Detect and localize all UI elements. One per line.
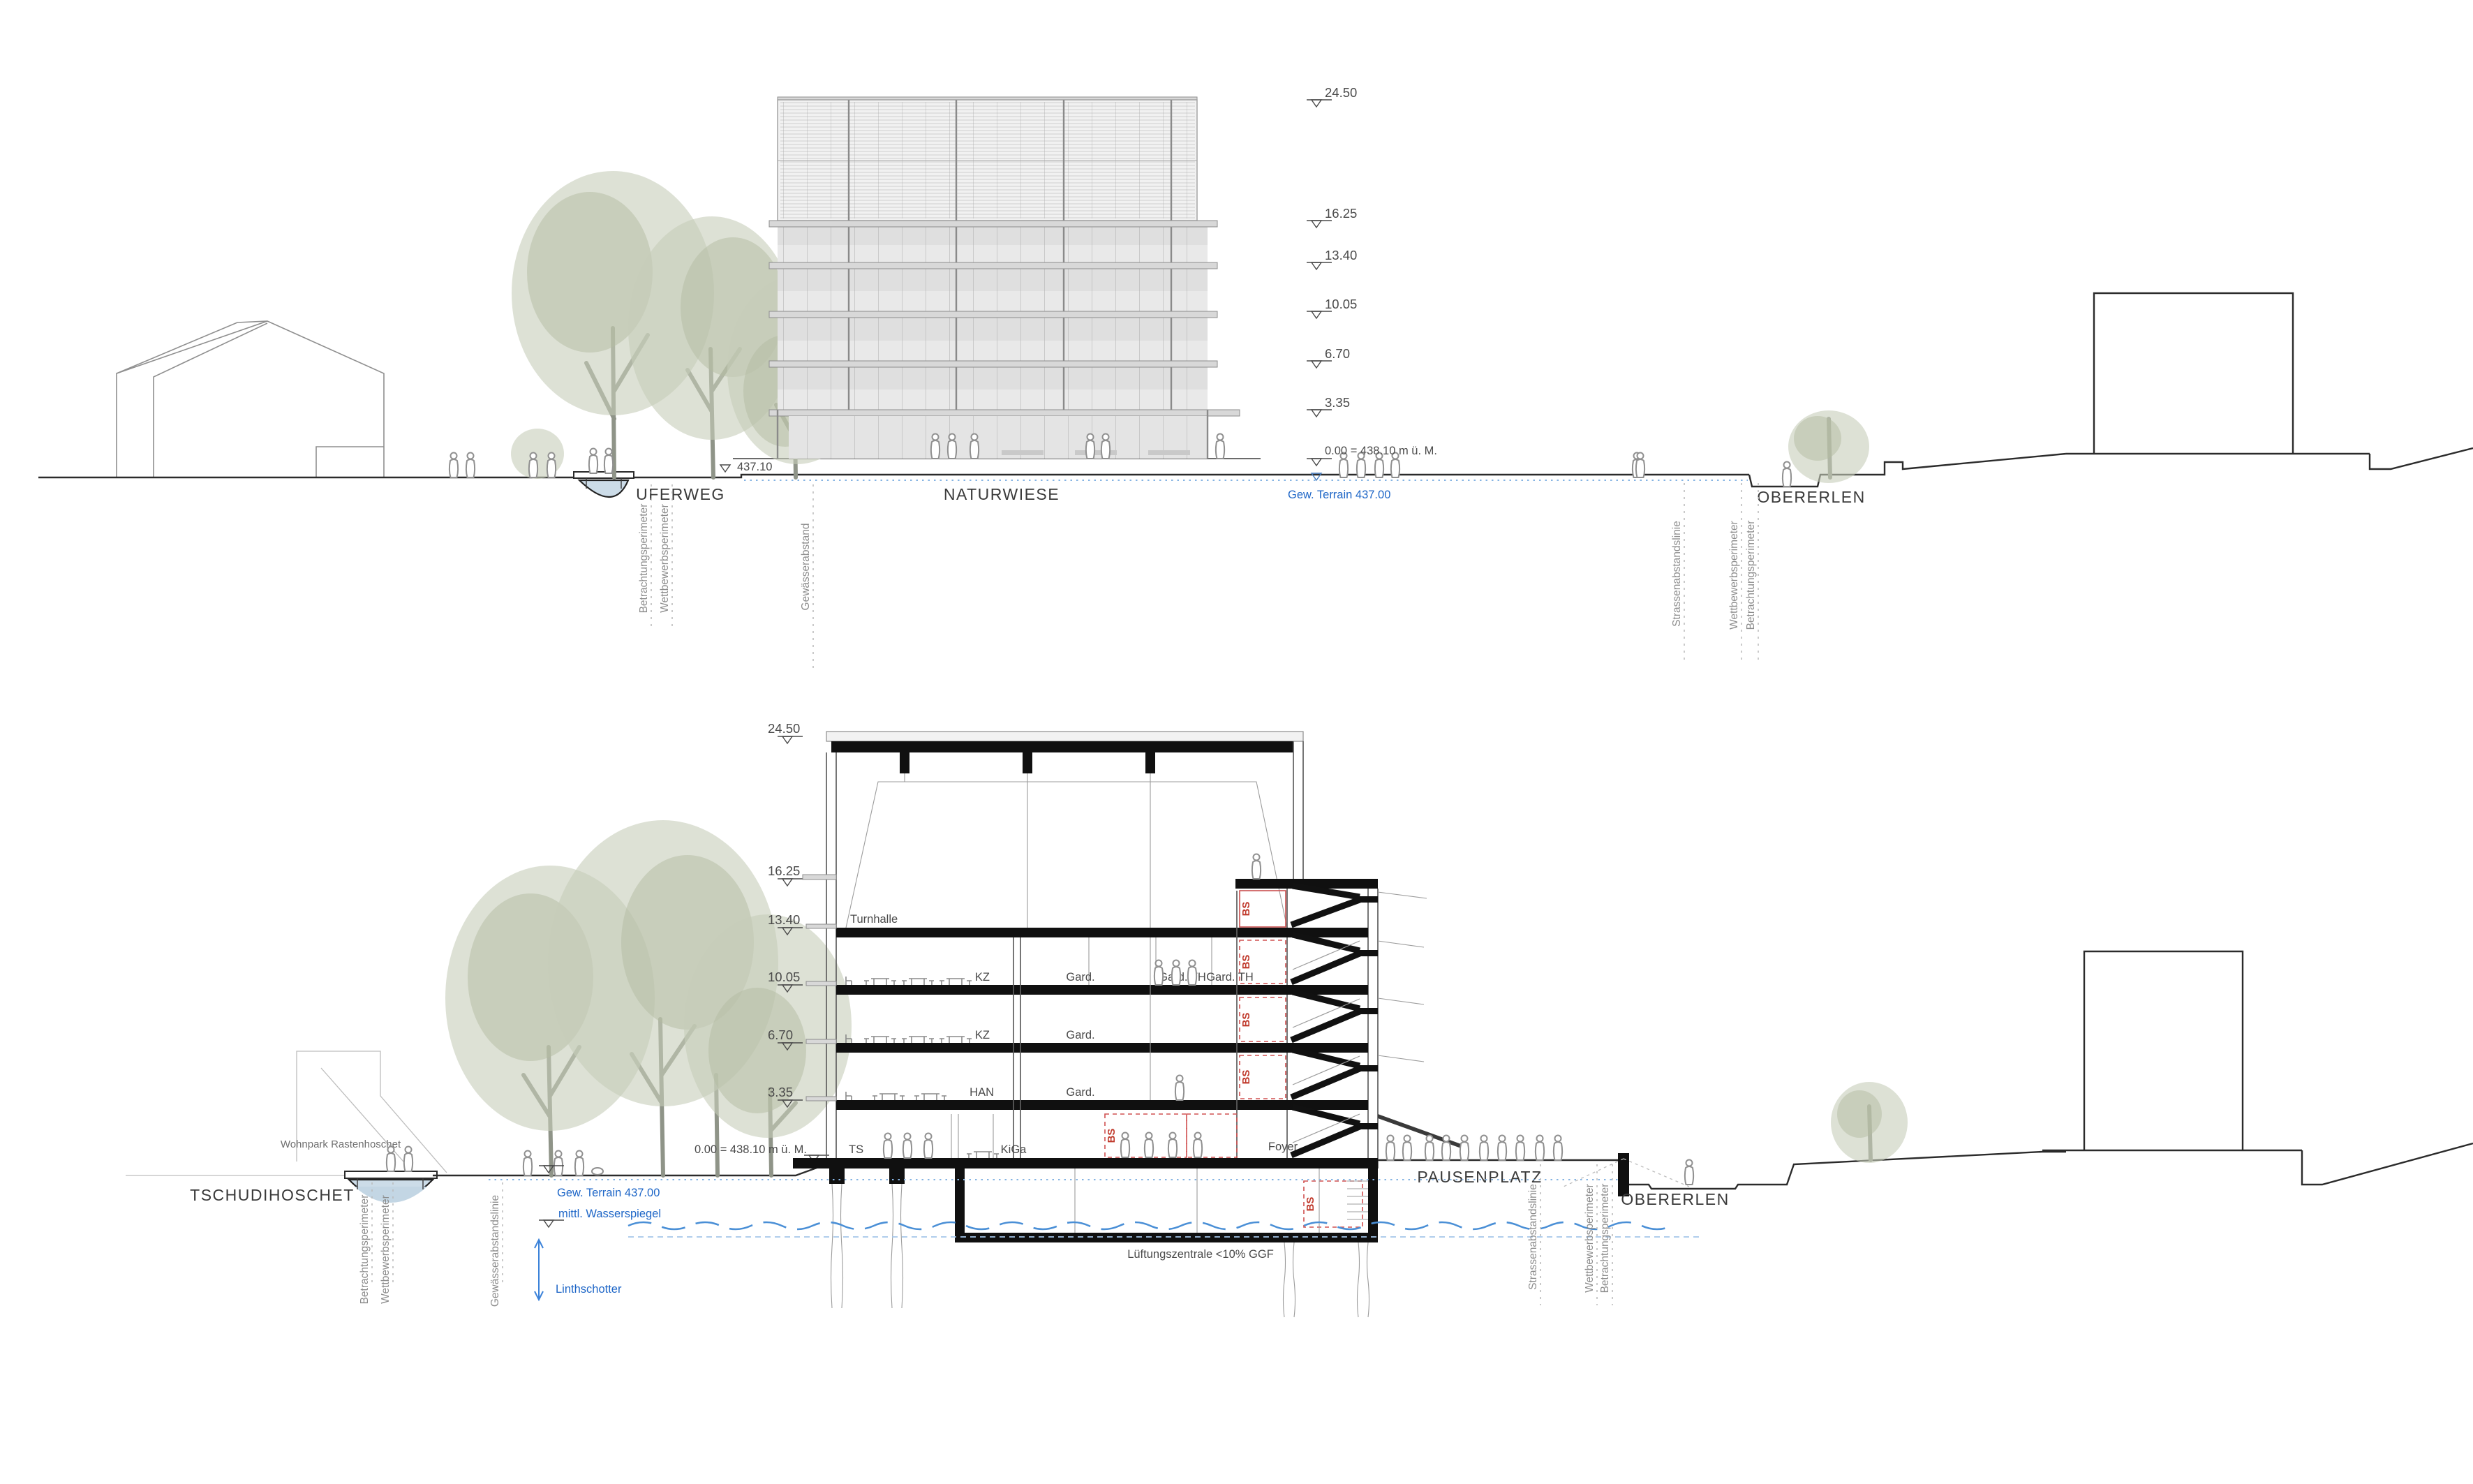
terrain-label: Gew. Terrain 437.00 bbox=[1288, 489, 1390, 501]
section-slab-ground bbox=[793, 1158, 1378, 1168]
slab-16-25 bbox=[769, 221, 1217, 227]
context-house-left bbox=[117, 321, 384, 477]
groundwater-wave-line bbox=[628, 1222, 1672, 1229]
perimeter-label: Wettbewerbsperimeter bbox=[380, 1195, 392, 1304]
context-building-right bbox=[2066, 293, 2473, 469]
bs-label: BS bbox=[1305, 1197, 1316, 1212]
level-label: 24.50 bbox=[768, 721, 800, 736]
room-label-han: HAN bbox=[970, 1086, 994, 1099]
level-marker-10-05: 10.05 bbox=[1307, 297, 1357, 318]
level-label: 6.70 bbox=[1325, 346, 1350, 361]
room-label-gard: Gard. bbox=[1066, 1029, 1094, 1041]
section-people-interior bbox=[884, 854, 1261, 1159]
section-drawing: Wohnpark Rastenhoschet TSCHUDIHOSCHET 24… bbox=[126, 721, 2473, 1317]
drawing-canvas: 24.50 16.25 13.40 10.05 6.70 3.35 0.00 =… bbox=[0, 0, 2473, 1484]
roof-slab bbox=[831, 741, 1293, 752]
level-label: 16.25 bbox=[768, 863, 800, 878]
room-label-gard-th: Gard. TH bbox=[1159, 971, 1206, 984]
facade-storeys bbox=[769, 221, 1240, 416]
slab-13-40 bbox=[769, 262, 1217, 269]
perimeter-label: Betrachtungsperimeter bbox=[1745, 521, 1757, 630]
room-label-ts: TS bbox=[849, 1143, 863, 1156]
bs-label: BS bbox=[1106, 1129, 1117, 1143]
terrain-marker-blue: Gew. Terrain 437.00 bbox=[1288, 473, 1390, 501]
section-slab-10-05 bbox=[836, 985, 1368, 995]
tree-right-section bbox=[1831, 1082, 1908, 1163]
room-label-gard: Gard. bbox=[1066, 1086, 1094, 1099]
room-label-kz: KZ bbox=[975, 1029, 990, 1041]
perimeter-label: Betrachtungsperimeter bbox=[1599, 1184, 1611, 1293]
perimeter-label: Wettbewerbsperimeter bbox=[659, 504, 671, 613]
wasserspiegel-label: mittl. Wasserspiegel bbox=[558, 1208, 661, 1220]
room-label-gard-th: Gard. TH bbox=[1206, 971, 1254, 984]
bs-label: BS bbox=[1240, 902, 1252, 917]
water-setback-label-section: Gewässerabstandslinie bbox=[489, 1195, 501, 1307]
elevation-level-markers: 24.50 16.25 13.40 10.05 6.70 3.35 0.00 =… bbox=[1288, 85, 1437, 501]
bs-label: BS bbox=[1240, 1013, 1252, 1027]
ground-floor-glazing bbox=[778, 410, 1208, 459]
naturwiese-label: NATURWIESE bbox=[944, 485, 1060, 503]
slab-10-05 bbox=[769, 311, 1217, 318]
obererlen-label-top: OBERERLEN bbox=[1757, 488, 1865, 506]
water-setback-label: Gewässerabstand bbox=[800, 524, 812, 611]
section-slab-3-35 bbox=[836, 1100, 1368, 1110]
right-facade-fins bbox=[1378, 892, 1463, 1149]
pausenplatz-label: PAUSENPLATZ bbox=[1417, 1168, 1542, 1186]
perimeter-label: Wettbewerbsperimeter bbox=[1584, 1184, 1596, 1293]
bs-label: BS bbox=[1240, 955, 1252, 970]
room-label-foyer: Foyer bbox=[1268, 1141, 1298, 1153]
street-setback-label: Strassenabstandslinie bbox=[1527, 1184, 1539, 1290]
uferweg-label: UFERWEG bbox=[636, 485, 725, 503]
level-marker-6-70: 6.70 bbox=[1307, 346, 1350, 368]
level-label: 6.70 bbox=[768, 1027, 793, 1042]
entrance-canopy-slab bbox=[769, 410, 1240, 416]
level-label: 13.40 bbox=[768, 912, 800, 927]
section-ground-left bbox=[433, 1164, 826, 1175]
path-level-label: 437.10 bbox=[737, 461, 772, 473]
level-label: 16.25 bbox=[1325, 206, 1357, 221]
terrain-label-section: Gew. Terrain 437.00 bbox=[557, 1187, 660, 1199]
zero-level-label: 0.00 = 438.10 m ü. M. bbox=[1325, 445, 1437, 457]
room-label-kiga: KiGa bbox=[1001, 1143, 1027, 1156]
wohnpark-label: Wohnpark Rastenhoschet bbox=[281, 1138, 401, 1150]
elevation-drawing: 24.50 16.25 13.40 10.05 6.70 3.35 0.00 =… bbox=[38, 85, 2473, 670]
section-slab-13-40 bbox=[836, 928, 1368, 937]
level-marker-3-35: 3.35 bbox=[1307, 395, 1350, 417]
level-marker-24-50: 24.50 bbox=[1307, 85, 1357, 107]
street-setback-label: Strassenabstandslinie bbox=[1671, 521, 1683, 627]
room-label-kz: KZ bbox=[975, 971, 990, 984]
elevation-perimeter-lines: Betrachtungsperimeter Wettbewerbsperimet… bbox=[638, 483, 1758, 670]
level-label: 3.35 bbox=[1325, 395, 1350, 410]
bs-label: BS bbox=[1240, 1070, 1252, 1085]
perimeter-label: Betrachtungsperimeter bbox=[638, 504, 650, 614]
basement-slab bbox=[955, 1233, 1378, 1242]
basement: Lüftungszentrale <10% GGF bbox=[955, 1168, 1378, 1261]
obererlen-label-section: OBERERLEN bbox=[1621, 1190, 1729, 1208]
level-label: 24.50 bbox=[1325, 85, 1357, 100]
wohnpark-context: Wohnpark Rastenhoschet bbox=[126, 1051, 447, 1175]
linthschotter-label: Linthschotter bbox=[556, 1283, 622, 1296]
room-label-gard: Gard. bbox=[1066, 971, 1094, 984]
perimeter-label: Wettbewerbsperimeter bbox=[1728, 521, 1740, 630]
uferweg-channel bbox=[574, 472, 634, 497]
pile-foundations bbox=[829, 1168, 1369, 1317]
tschudihoschet-label: TSCHUDIHOSCHET bbox=[190, 1186, 355, 1204]
room-label-turnhalle: Turnhalle bbox=[850, 913, 898, 926]
linthschotter-arrow bbox=[535, 1240, 543, 1300]
section-slab-6-70 bbox=[836, 1043, 1368, 1053]
section-room-labels: KZ Gard. Gard. TH KZ Gard. HAN Gard. TS … bbox=[846, 971, 1298, 1158]
level-label: 10.05 bbox=[1325, 297, 1357, 311]
school-building-elevation bbox=[769, 97, 1240, 459]
basement-label: Lüftungszentrale <10% GGF bbox=[1127, 1248, 1274, 1261]
school-building-section: Turnhalle BS bbox=[793, 732, 1463, 1317]
context-building-right-section bbox=[2042, 951, 2473, 1185]
tree-right bbox=[1788, 410, 1869, 483]
level-marker-zero: 0.00 = 438.10 m ü. M. bbox=[1307, 445, 1437, 466]
zero-level-label: 0.00 = 438.10 m ü. M. bbox=[695, 1143, 807, 1156]
level-label: 3.35 bbox=[768, 1085, 793, 1099]
level-marker-13-40: 13.40 bbox=[1307, 248, 1357, 269]
architectural-drawing-sheet: 24.50 16.25 13.40 10.05 6.70 3.35 0.00 =… bbox=[0, 0, 2473, 1484]
perimeter-label: Betrachtungsperimeter bbox=[359, 1195, 371, 1305]
level-marker-16-25: 16.25 bbox=[1307, 206, 1357, 228]
slab-6-70 bbox=[769, 361, 1217, 367]
path-level-marker: 437.10 bbox=[720, 461, 772, 473]
roof-fascia bbox=[826, 732, 1303, 741]
level-label: 13.40 bbox=[1325, 248, 1357, 262]
level-label: 10.05 bbox=[768, 970, 800, 984]
